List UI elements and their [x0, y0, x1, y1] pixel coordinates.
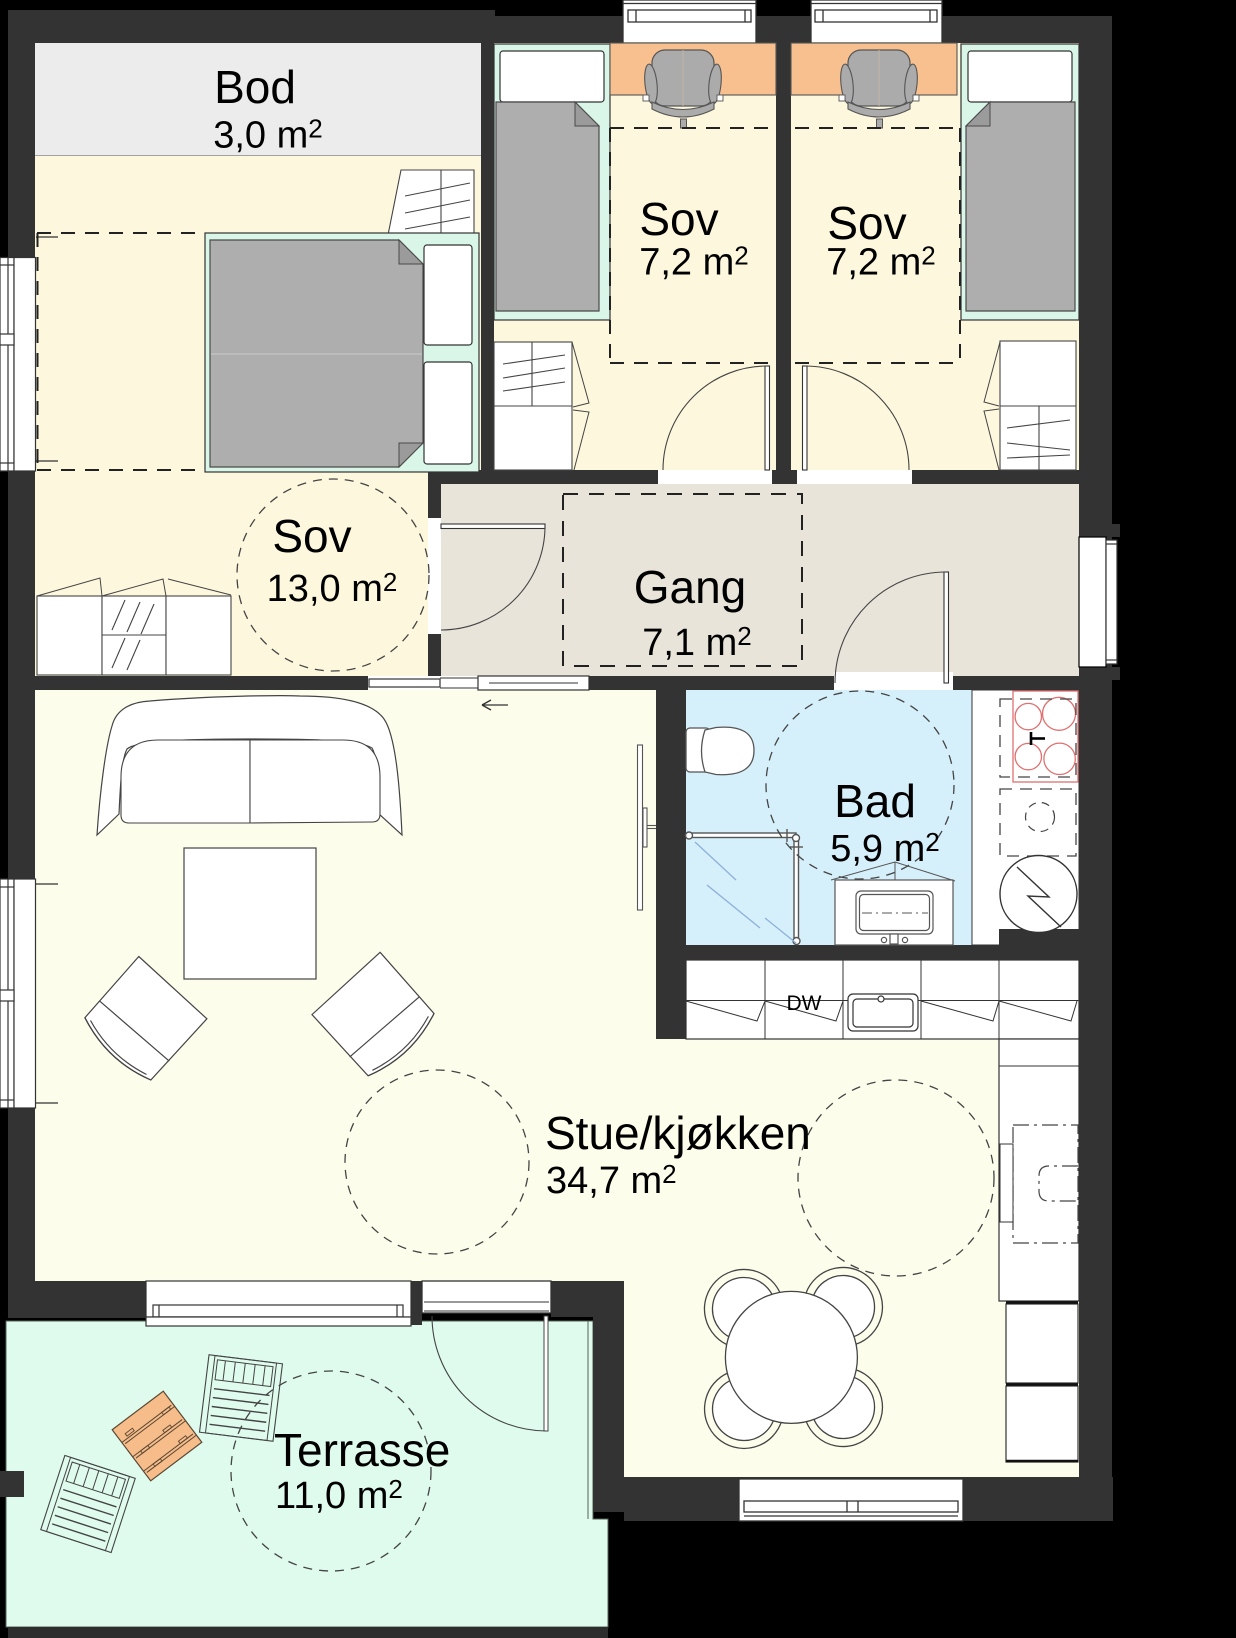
svg-text:7,2 m2: 7,2 m2	[639, 241, 749, 284]
svg-text:Terrasse: Terrasse	[274, 1424, 450, 1476]
svg-text:7,1 m2: 7,1 m2	[642, 621, 752, 664]
svg-text:Gang: Gang	[634, 561, 747, 613]
svg-text:Sov: Sov	[639, 193, 718, 245]
svg-text:DW: DW	[787, 992, 822, 1015]
svg-text:Sov: Sov	[272, 510, 351, 562]
svg-text:Stue/kjøkken: Stue/kjøkken	[545, 1107, 811, 1159]
svg-text:Bod: Bod	[214, 61, 296, 113]
svg-text:13,0 m2: 13,0 m2	[267, 567, 398, 610]
svg-text:34,7 m2: 34,7 m2	[546, 1159, 677, 1202]
svg-text:3,0 m2: 3,0 m2	[213, 114, 323, 157]
svg-text:7,2 m2: 7,2 m2	[826, 241, 936, 284]
svg-text:Bad: Bad	[834, 775, 916, 827]
svg-text:11,0 m2: 11,0 m2	[275, 1474, 403, 1517]
svg-text:5,9 m2: 5,9 m2	[830, 827, 940, 870]
